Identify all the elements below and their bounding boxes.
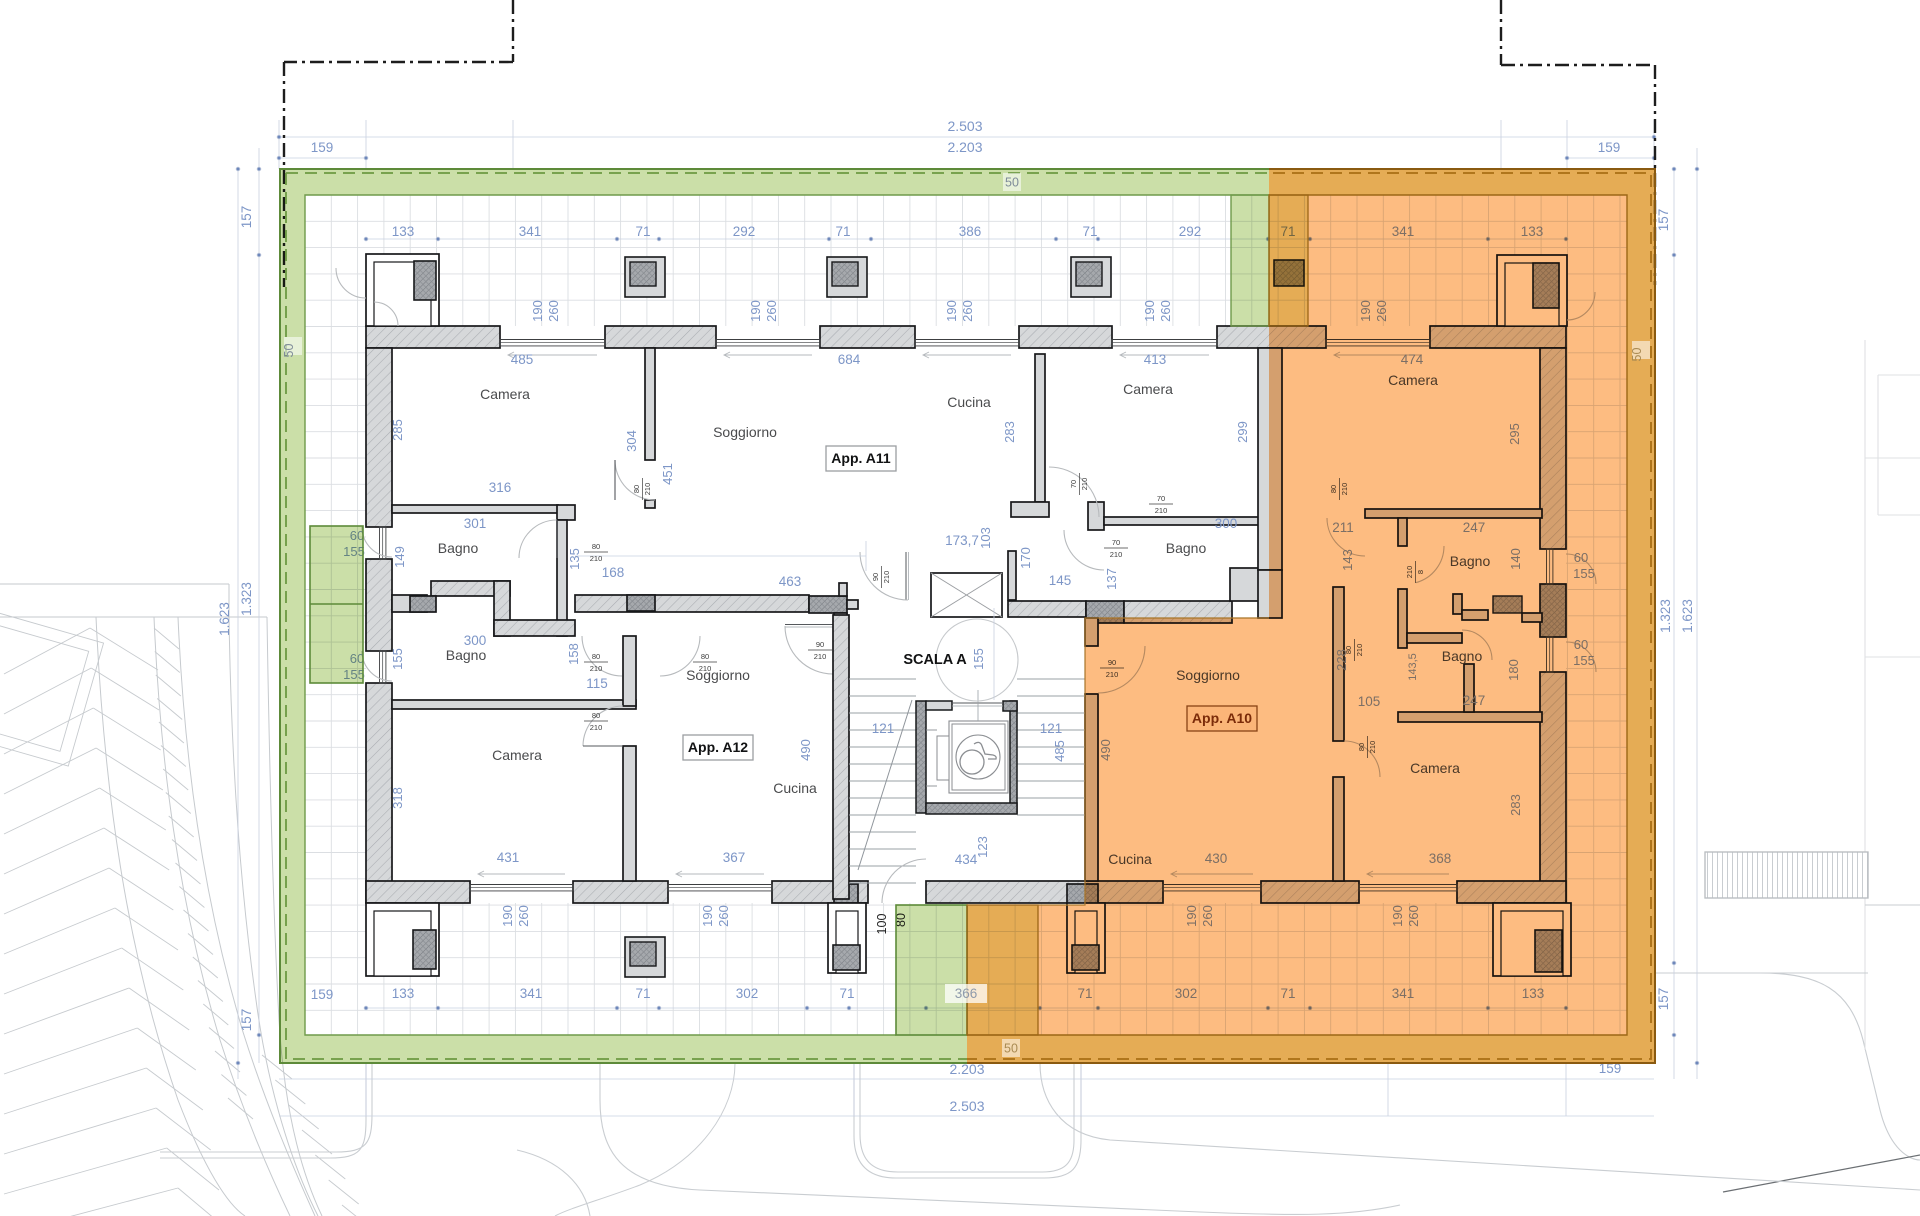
svg-text:210: 210 [1080,478,1089,491]
svg-text:50: 50 [1004,1042,1018,1056]
svg-text:1.323: 1.323 [1658,599,1673,633]
svg-text:70: 70 [1112,538,1120,547]
svg-text:157: 157 [239,1009,254,1032]
svg-text:260: 260 [960,300,975,322]
svg-text:159: 159 [311,987,334,1002]
svg-text:80: 80 [592,711,600,720]
svg-text:135: 135 [567,548,582,570]
svg-text:Soggiorno: Soggiorno [713,424,777,440]
svg-text:210: 210 [699,664,712,673]
svg-text:292: 292 [733,224,756,239]
svg-text:168: 168 [602,565,625,580]
svg-text:121: 121 [1040,721,1063,736]
svg-text:190: 190 [700,905,715,927]
svg-text:190: 190 [1142,300,1157,322]
svg-text:190: 190 [944,300,959,322]
svg-text:300: 300 [464,633,487,648]
svg-text:210: 210 [1110,550,1123,559]
svg-text:157: 157 [1656,209,1671,232]
svg-text:301: 301 [464,516,487,531]
svg-text:80: 80 [632,485,641,493]
svg-text:366: 366 [955,986,978,1001]
svg-text:210: 210 [643,483,652,496]
svg-text:190: 190 [748,300,763,322]
svg-text:50: 50 [1630,348,1644,362]
svg-text:137: 137 [1104,568,1119,590]
svg-text:2.503: 2.503 [949,1098,984,1114]
svg-text:190: 190 [500,905,515,927]
svg-text:70: 70 [1157,494,1165,503]
svg-text:299: 299 [1235,421,1250,443]
svg-text:90: 90 [816,640,824,649]
svg-text:71: 71 [835,224,850,239]
svg-text:App. A11: App. A11 [831,450,891,466]
svg-text:2.503: 2.503 [947,118,982,134]
svg-text:260: 260 [1158,300,1173,322]
svg-text:70: 70 [1069,480,1078,488]
svg-text:173,7: 173,7 [945,533,979,548]
svg-text:292: 292 [1179,224,1202,239]
svg-text:Camera: Camera [1123,381,1173,397]
svg-text:133: 133 [392,224,415,239]
svg-text:80: 80 [592,542,600,551]
svg-text:485: 485 [511,352,534,367]
svg-text:155: 155 [971,648,986,670]
svg-text:Bagno: Bagno [446,647,487,663]
svg-text:121: 121 [872,721,895,736]
svg-text:386: 386 [959,224,982,239]
svg-text:103: 103 [978,527,993,549]
svg-text:157: 157 [239,206,254,229]
svg-text:463: 463 [779,574,802,589]
svg-text:260: 260 [716,905,731,927]
svg-text:283: 283 [1002,421,1017,443]
svg-text:155: 155 [390,648,405,670]
svg-text:316: 316 [489,480,512,495]
svg-text:2.203: 2.203 [947,139,982,155]
svg-text:133: 133 [392,986,415,1001]
svg-text:145: 145 [1049,573,1072,588]
svg-text:170: 170 [1018,547,1033,569]
svg-text:80: 80 [592,652,600,661]
svg-text:158: 158 [566,643,581,665]
svg-text:413: 413 [1144,352,1167,367]
svg-text:Bagno: Bagno [1166,540,1207,556]
svg-text:Bagno: Bagno [438,540,479,556]
svg-text:210: 210 [814,652,827,661]
svg-text:157: 157 [1656,988,1671,1011]
svg-text:1.623: 1.623 [1680,599,1695,633]
svg-text:80: 80 [701,652,709,661]
svg-text:1.623: 1.623 [217,602,232,636]
svg-text:210: 210 [590,723,603,732]
svg-text:159: 159 [1598,140,1621,155]
svg-text:300: 300 [1215,516,1238,531]
svg-text:341: 341 [520,986,543,1001]
svg-text:210: 210 [590,554,603,563]
svg-text:367: 367 [723,850,746,865]
svg-text:260: 260 [764,300,779,322]
svg-text:285: 285 [390,419,405,441]
svg-text:210: 210 [882,571,891,584]
svg-text:Soggiorno: Soggiorno [686,667,750,683]
svg-text:149: 149 [392,546,407,568]
svg-text:159: 159 [311,140,334,155]
svg-text:451: 451 [660,463,675,485]
svg-text:Cucina: Cucina [947,394,991,410]
svg-text:71: 71 [635,224,650,239]
svg-text:260: 260 [516,905,531,927]
svg-text:318: 318 [390,787,405,809]
svg-text:485: 485 [1052,740,1067,762]
svg-text:SCALA A: SCALA A [903,652,967,668]
svg-text:71: 71 [839,986,854,1001]
svg-text:Camera: Camera [480,386,530,402]
svg-text:50: 50 [1005,176,1019,190]
svg-text:1.323: 1.323 [239,582,254,616]
svg-text:71: 71 [635,986,650,1001]
svg-text:431: 431 [497,850,520,865]
svg-text:302: 302 [736,986,759,1001]
svg-text:123: 123 [975,836,990,858]
svg-text:684: 684 [838,352,861,367]
svg-text:71: 71 [1082,224,1097,239]
svg-text:210: 210 [1155,506,1168,515]
svg-text:490: 490 [798,739,813,761]
svg-text:190: 190 [530,300,545,322]
svg-text:100: 100 [875,914,889,935]
svg-text:210: 210 [590,664,603,673]
svg-text:50: 50 [282,344,296,358]
svg-text:304: 304 [624,430,639,452]
svg-text:Cucina: Cucina [773,780,817,796]
svg-text:Camera: Camera [492,747,542,763]
svg-text:341: 341 [519,224,542,239]
svg-text:115: 115 [586,676,608,691]
svg-text:90: 90 [871,573,880,581]
svg-text:App. A12: App. A12 [688,739,748,755]
svg-text:260: 260 [546,300,561,322]
